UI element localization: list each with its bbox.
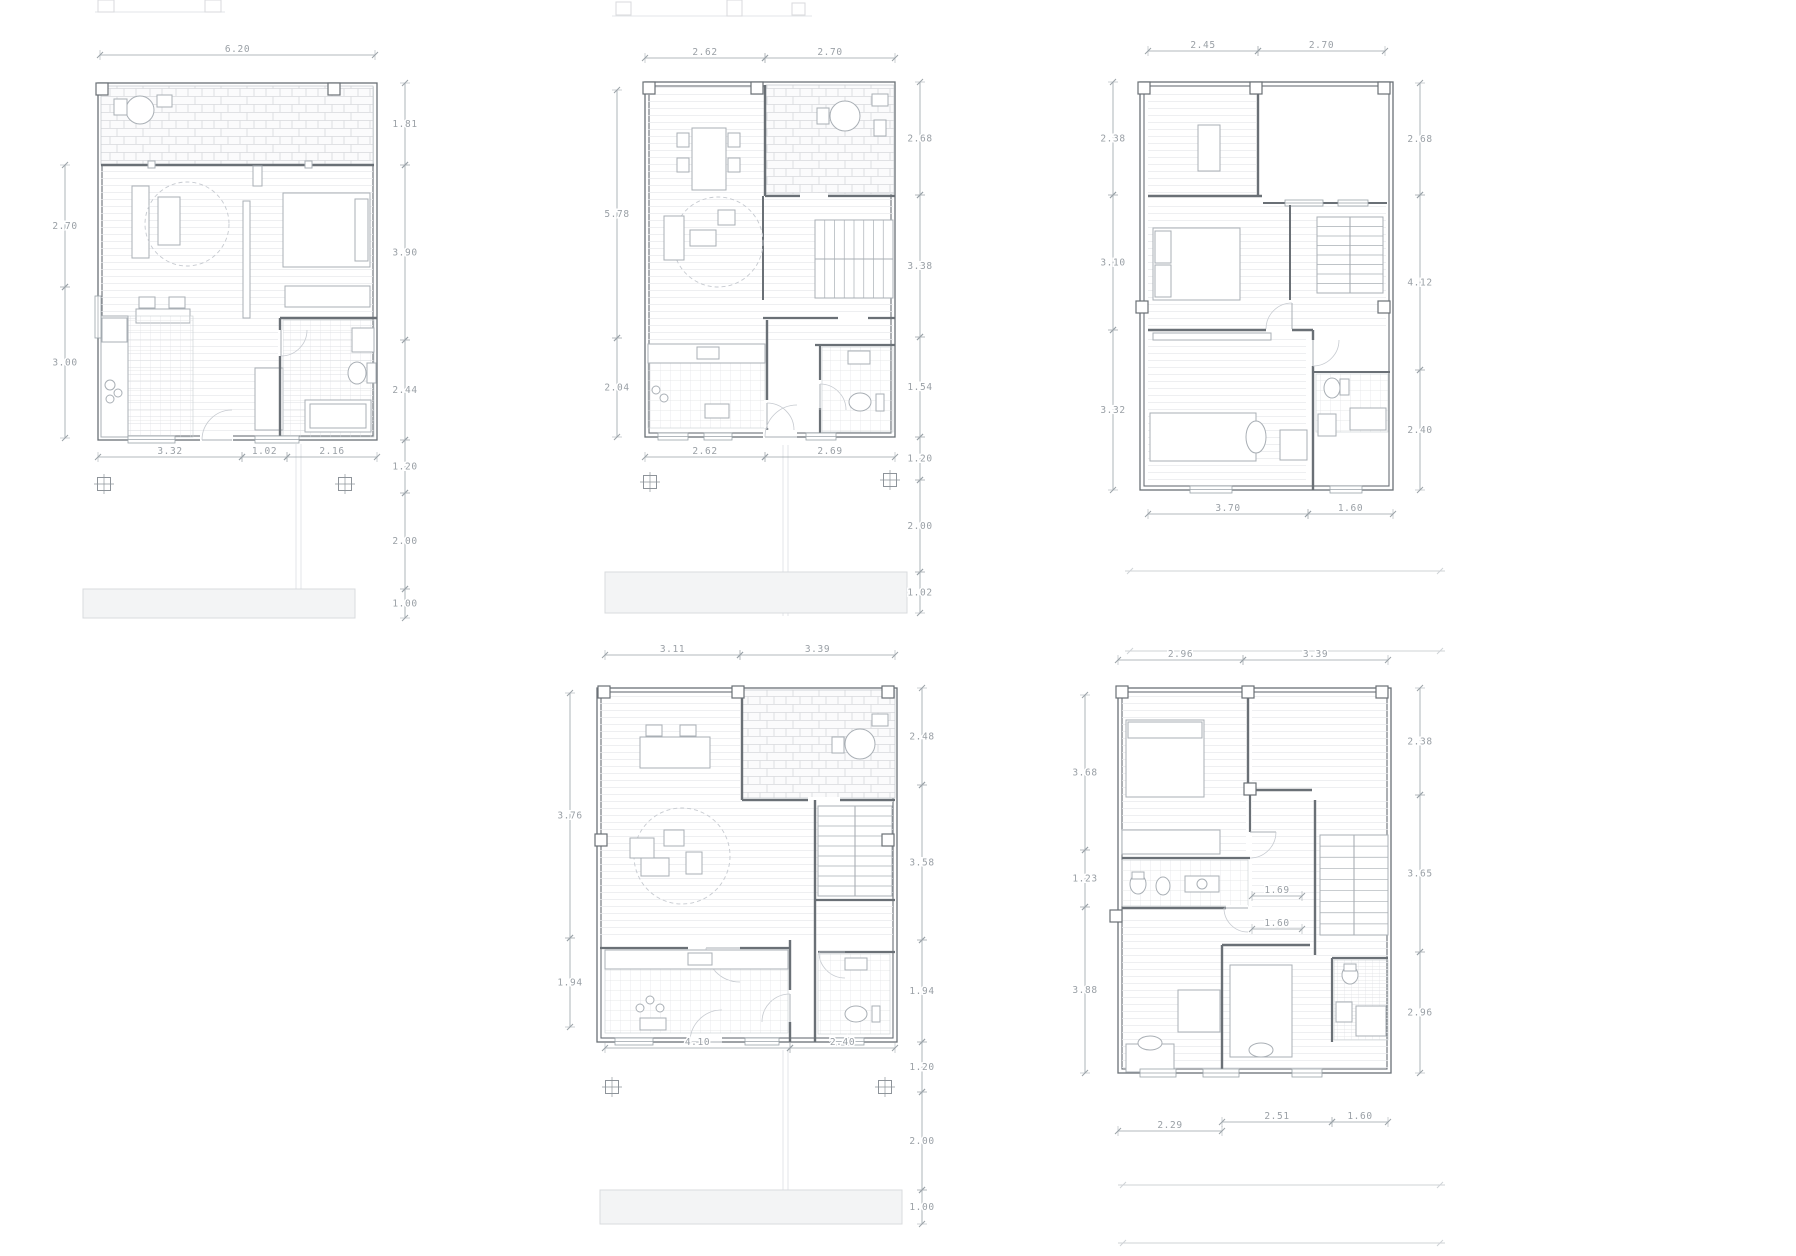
- dimension-label: 3.90: [392, 248, 417, 259]
- sofa: [132, 186, 149, 258]
- dimension-label: 6.20: [225, 44, 250, 55]
- pillar: [643, 82, 655, 94]
- chair: [728, 158, 740, 172]
- dimension-label: 1.20: [392, 462, 417, 473]
- bed: [1150, 413, 1256, 461]
- pillar: [1138, 82, 1150, 94]
- wardrobe: [1122, 830, 1220, 854]
- shower: [1356, 1006, 1386, 1036]
- toilet: [348, 362, 366, 384]
- sink: [848, 351, 870, 364]
- sink: [1318, 414, 1336, 436]
- sink: [688, 953, 712, 965]
- terrace-table: [845, 729, 875, 759]
- wall-opening: [838, 315, 868, 321]
- dimension-label: 2.70: [52, 221, 77, 232]
- burner: [652, 386, 660, 394]
- pillar: [1116, 686, 1128, 698]
- dimension-label: 3.11: [660, 644, 685, 655]
- cistern: [876, 394, 884, 411]
- pillar: [328, 83, 340, 95]
- dimension-label: 1.81: [392, 119, 417, 130]
- dimension-label: 3.10: [1100, 258, 1125, 269]
- dimension-label: 1.94: [557, 978, 582, 989]
- pillar: [1250, 82, 1262, 94]
- terrace-table: [126, 96, 154, 124]
- pillow: [1128, 722, 1202, 738]
- sink: [697, 347, 719, 359]
- coffee-table: [158, 197, 180, 245]
- dimension-label: 2.00: [392, 536, 417, 547]
- pillar: [1242, 686, 1254, 698]
- closet: [1178, 990, 1220, 1032]
- dimension-label: 5.78: [604, 209, 629, 220]
- dimension-label: 2.40: [1407, 425, 1432, 436]
- dimension-label: 3.39: [805, 644, 830, 655]
- dining-table: [692, 128, 726, 190]
- dimension-label: 2.38: [1407, 737, 1432, 748]
- pillar: [595, 834, 607, 846]
- pillar: [751, 82, 763, 94]
- floor-plans-drawing: 6.202.703.001.813.902.441.202.001.003.32…: [0, 0, 1796, 1256]
- ground-bar: [605, 572, 907, 613]
- dimension-label: 2.51: [1264, 1111, 1289, 1122]
- dimension-label: 2.62: [692, 446, 717, 457]
- dimension-label: 3.88: [1072, 985, 1097, 996]
- partition-cabinet: [243, 201, 250, 318]
- oven: [640, 1018, 666, 1030]
- sofa: [664, 216, 684, 260]
- kitchen-island: [705, 404, 729, 418]
- dimension-label: 2.00: [909, 1136, 934, 1147]
- pillar: [1376, 686, 1388, 698]
- dimension-label: 3.68: [1072, 768, 1097, 779]
- chair: [832, 737, 844, 753]
- sideboard: [285, 286, 370, 307]
- dimension-label: 1.20: [907, 454, 932, 465]
- pillar: [1136, 301, 1148, 313]
- ground-bar: [83, 589, 355, 618]
- chair: [680, 725, 696, 736]
- bathtub-inner: [310, 404, 366, 428]
- chair: [139, 297, 155, 308]
- dimension-label: 2.45: [1190, 40, 1215, 51]
- toilet: [849, 393, 871, 411]
- dining-table: [640, 737, 710, 768]
- dimension-label: 2.16: [319, 446, 344, 457]
- dimension-label: 2.04: [604, 383, 629, 394]
- dimension-label: 3.39: [1303, 649, 1328, 660]
- cistern: [1340, 379, 1349, 395]
- floor-hatch: [1148, 334, 1306, 486]
- coffee-table: [664, 830, 684, 846]
- dimension-label: 2.62: [692, 47, 717, 58]
- armchair: [630, 838, 654, 858]
- pillow: [1155, 265, 1171, 297]
- dimension-label: 2.38: [1100, 134, 1125, 145]
- wall-opening: [800, 193, 828, 199]
- dimension-label: 1.60: [1338, 503, 1363, 514]
- ground-bar: [600, 1190, 902, 1224]
- pillow: [1155, 231, 1171, 263]
- shelf: [1153, 333, 1271, 340]
- cistern: [872, 1006, 880, 1022]
- dimension-label: 2.44: [392, 385, 417, 396]
- pillar: [96, 83, 108, 95]
- sink: [352, 328, 374, 352]
- pillow: [1249, 1043, 1273, 1057]
- pillar: [1244, 783, 1256, 795]
- chair: [677, 158, 689, 172]
- dimension-label: 3.76: [557, 811, 582, 822]
- wall-opening: [808, 797, 840, 803]
- dimension-label: 2.96: [1168, 649, 1193, 660]
- wall-stub: [253, 166, 262, 186]
- burner: [106, 395, 114, 403]
- kitchen-floor: [605, 969, 788, 1033]
- sink-bowl: [105, 380, 115, 390]
- desk: [1198, 125, 1220, 171]
- pillar: [598, 686, 610, 698]
- armchair: [686, 852, 702, 874]
- dimension-label: 2.96: [1407, 1008, 1432, 1019]
- basin: [1197, 879, 1207, 889]
- chair: [872, 94, 888, 106]
- chair: [728, 133, 740, 147]
- coffee-table: [690, 230, 716, 246]
- dimension-label: 3.32: [1100, 405, 1125, 416]
- chair: [169, 297, 185, 308]
- dimension-label: 2.40: [830, 1037, 855, 1048]
- chair: [677, 133, 689, 147]
- dimension-label: 1.60: [1347, 1111, 1372, 1122]
- toilet: [1324, 378, 1340, 398]
- dimension-label: 1.60: [1264, 918, 1289, 929]
- mullion: [305, 161, 312, 168]
- architectural-sheet: 6.202.703.001.813.902.441.202.001.003.32…: [0, 0, 1796, 1256]
- burner: [660, 394, 668, 402]
- wardrobe: [1280, 430, 1307, 460]
- dimension-label: 1.02: [252, 446, 277, 457]
- pillar: [732, 686, 744, 698]
- dimension-label: 2.29: [1157, 1120, 1182, 1131]
- chair: [874, 120, 886, 136]
- pillar: [882, 686, 894, 698]
- mullion: [148, 161, 155, 168]
- burner: [646, 996, 654, 1004]
- sofa: [641, 858, 669, 876]
- dimension-label: 1.23: [1072, 874, 1097, 885]
- dimension-label: 2.68: [1407, 134, 1432, 145]
- dimension-label: 2.69: [817, 446, 842, 457]
- chair: [817, 108, 829, 124]
- dimension-label: 3.38: [907, 261, 932, 272]
- pillar: [882, 834, 894, 846]
- dimension-label: 3.65: [1407, 869, 1432, 880]
- floor-hatch: [1252, 692, 1388, 788]
- dimension-label: 2.68: [907, 134, 932, 145]
- chair: [872, 714, 888, 726]
- fridge: [102, 318, 127, 342]
- dimension-label: 1.69: [1264, 885, 1289, 896]
- wall-opening: [763, 430, 797, 439]
- dimension-label: 2.00: [907, 521, 932, 532]
- bidet: [1156, 877, 1170, 895]
- pillar: [1110, 910, 1122, 922]
- dimension-label: 3.00: [52, 358, 77, 369]
- shower: [1350, 408, 1386, 430]
- dimension-label: 3.58: [909, 858, 934, 869]
- toilet: [845, 1006, 867, 1022]
- cistern: [1132, 872, 1144, 879]
- terrace-table: [830, 101, 860, 131]
- dimension-label: 2.70: [817, 47, 842, 58]
- chair: [114, 99, 127, 115]
- chair: [157, 95, 172, 107]
- sink: [1336, 1002, 1352, 1022]
- dimension-label: 1.54: [907, 382, 932, 393]
- burner: [636, 1004, 644, 1012]
- dimension-label: 1.02: [907, 588, 932, 599]
- dimension-label: 4.10: [685, 1037, 710, 1048]
- chair: [646, 725, 662, 736]
- dimension-label: 3.32: [157, 446, 182, 457]
- dimension-label: 1.00: [392, 599, 417, 610]
- dimension-label: 1.94: [909, 986, 934, 997]
- burner: [656, 1004, 664, 1012]
- pillar: [1378, 82, 1390, 94]
- cistern: [1344, 964, 1356, 971]
- armchair: [718, 210, 735, 225]
- dimension-label: 4.12: [1407, 278, 1432, 289]
- pillar: [1378, 301, 1390, 313]
- dimension-label: 1.00: [909, 1202, 934, 1213]
- burner: [114, 389, 122, 397]
- dimension-label: 1.20: [909, 1062, 934, 1073]
- pillow: [1138, 1036, 1162, 1050]
- pillow: [1246, 421, 1266, 453]
- dimension-label: 2.48: [909, 732, 934, 743]
- dimension-label: 2.70: [1309, 40, 1334, 51]
- pillow: [355, 199, 368, 261]
- dimension-label: 3.70: [1215, 503, 1240, 514]
- sink: [845, 958, 867, 970]
- cistern: [367, 363, 376, 383]
